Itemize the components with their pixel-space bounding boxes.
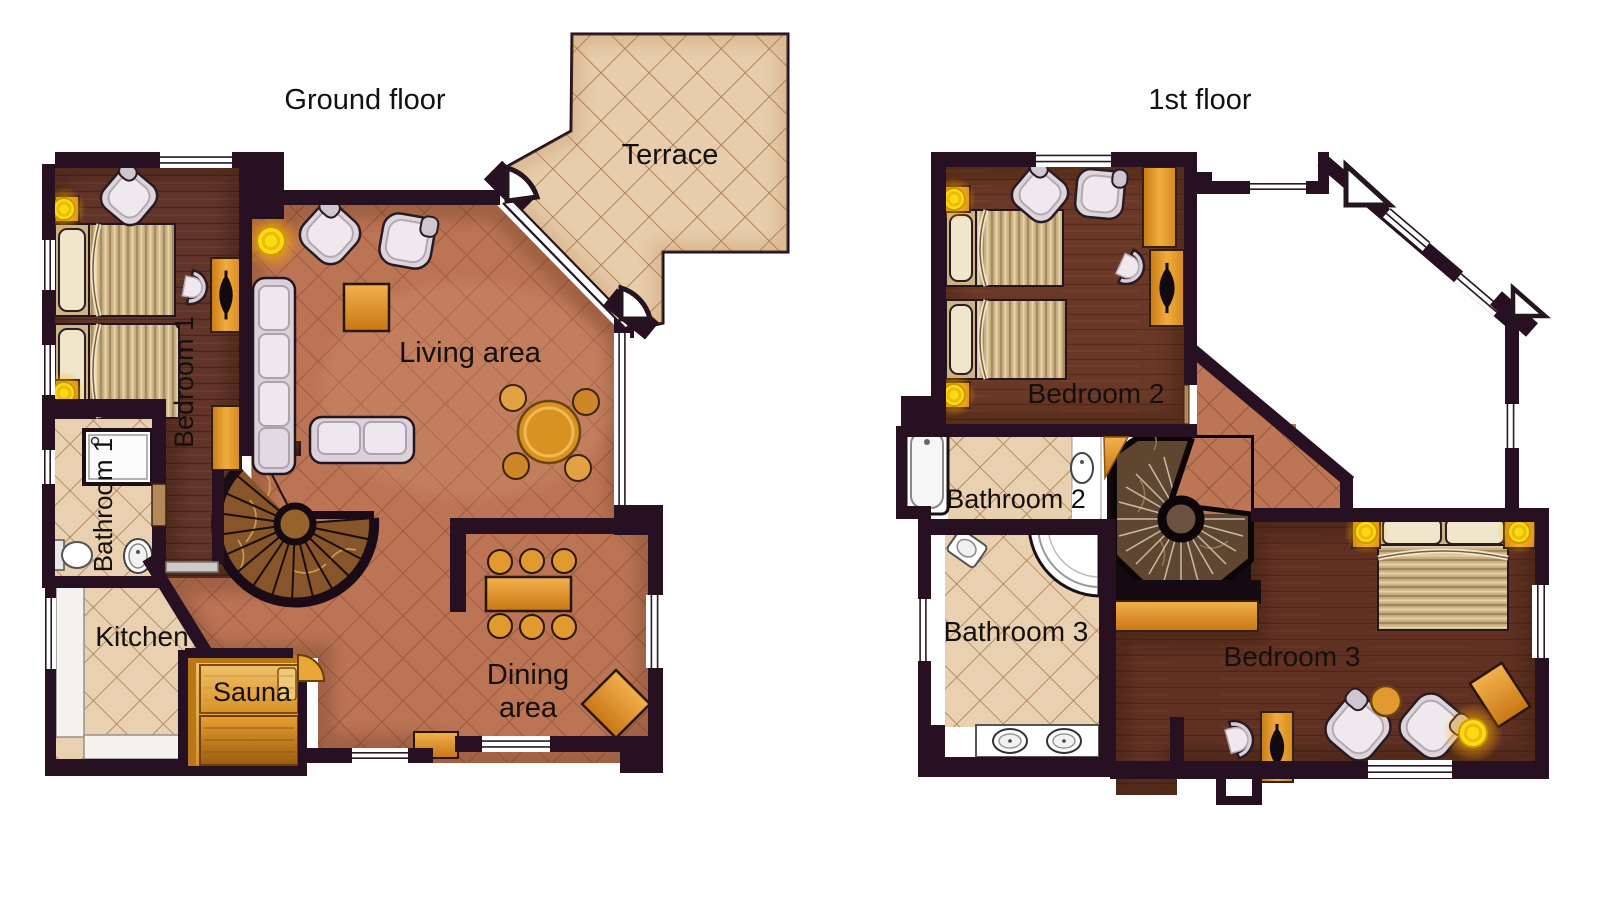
svg-text:Living area: Living area bbox=[399, 337, 542, 369]
svg-text:Bathroom 2: Bathroom 2 bbox=[946, 484, 1086, 514]
svg-text:Ground floor: Ground floor bbox=[284, 84, 446, 116]
svg-text:Bedroom 1: Bedroom 1 bbox=[169, 316, 199, 448]
svg-text:Sauna: Sauna bbox=[213, 677, 292, 707]
svg-text:Bathroom 1: Bathroom 1 bbox=[88, 438, 118, 572]
svg-text:1st floor: 1st floor bbox=[1148, 84, 1251, 116]
svg-text:Bathroom 3: Bathroom 3 bbox=[944, 616, 1089, 647]
svg-text:Terrace: Terrace bbox=[622, 139, 719, 171]
svg-text:Bedroom 2: Bedroom 2 bbox=[1028, 378, 1165, 409]
svg-text:area: area bbox=[499, 692, 558, 724]
svg-text:Dining: Dining bbox=[487, 659, 569, 691]
svg-text:Kitchen: Kitchen bbox=[95, 621, 188, 652]
svg-text:Bedroom 3: Bedroom 3 bbox=[1224, 641, 1361, 672]
